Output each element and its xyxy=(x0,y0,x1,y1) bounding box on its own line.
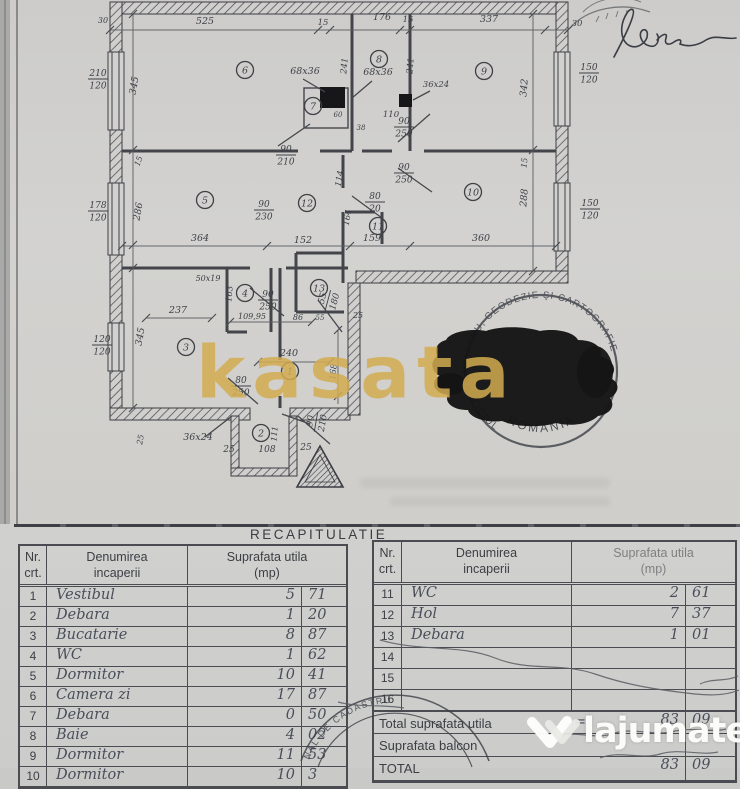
svg-text:120: 120 xyxy=(581,212,598,222)
row-number: 10 xyxy=(20,767,47,786)
scan-smudge xyxy=(360,478,610,488)
room-name: Dormitor xyxy=(47,667,188,686)
svg-text:150: 150 xyxy=(580,63,597,73)
table-header: Nr.crt. Denumireaincaperii Suprafata uti… xyxy=(374,542,735,585)
dimension-fraction: 90230 xyxy=(254,200,274,223)
dimension-fraction: 90210 xyxy=(276,145,296,168)
room-name: Hol xyxy=(402,606,572,626)
table-row: 13Debara101 xyxy=(374,627,735,648)
area-value: 1787 xyxy=(188,687,346,706)
area-value xyxy=(572,669,735,689)
room-name: WC xyxy=(402,585,572,605)
area-value: 402 xyxy=(188,727,346,746)
table-row: 1Vestibul571 xyxy=(20,587,346,607)
room-name: Dormitor xyxy=(47,767,188,786)
svg-text:180: 180 xyxy=(328,292,342,311)
dimension-label: 345 xyxy=(134,327,148,347)
dimension-label: 360 xyxy=(472,233,490,244)
svg-text:3: 3 xyxy=(183,342,189,353)
dimension-label: 15 xyxy=(133,155,145,168)
area-value: 120 xyxy=(188,607,346,626)
area-value: 050 xyxy=(188,707,346,726)
room-name: Debara xyxy=(47,607,188,626)
dimension-fraction: 150120 xyxy=(580,199,600,222)
dimension-label: 15 xyxy=(403,15,414,25)
svg-text:210: 210 xyxy=(88,69,106,79)
svg-text:80: 80 xyxy=(369,192,381,202)
header-nr: Nr.crt. xyxy=(374,542,402,582)
dimension-fraction: 150120 xyxy=(579,63,599,86)
room-name: WC xyxy=(47,647,188,666)
row-number: 12 xyxy=(374,606,402,626)
scan-smudge xyxy=(390,497,610,506)
svg-text:90: 90 xyxy=(280,145,292,155)
dimension-label: 36x24 xyxy=(423,80,449,90)
row-number: 3 xyxy=(20,627,47,646)
area-value: 887 xyxy=(188,627,346,646)
svg-text:250: 250 xyxy=(258,303,276,313)
svg-text:150: 150 xyxy=(581,199,598,209)
row-number: 7 xyxy=(20,707,47,726)
header-area: Suprafata utila(mp) xyxy=(572,542,735,582)
dimension-label: 15 xyxy=(520,157,530,168)
svg-text:90: 90 xyxy=(258,200,270,210)
dimension-label: 364 xyxy=(191,233,209,244)
area-value: 261 xyxy=(572,585,735,605)
svg-text:6: 6 xyxy=(242,65,248,76)
area-value xyxy=(572,648,735,668)
dimension-label: 38 xyxy=(357,124,366,132)
table-row: 10Dormitor103 xyxy=(20,767,346,787)
table-row: 7Debara050 xyxy=(20,707,346,727)
vent-block-large xyxy=(320,87,345,108)
area-value: 571 xyxy=(188,587,346,606)
room-number: 6 xyxy=(237,62,254,79)
header-nr: Nr.crt. xyxy=(20,546,47,584)
svg-text:210: 210 xyxy=(276,158,294,168)
svg-text:7: 7 xyxy=(310,101,317,112)
table-row: 6Camera zi1787 xyxy=(20,687,346,707)
svg-text:120: 120 xyxy=(89,214,106,224)
table-row: 16 xyxy=(374,690,735,711)
row-number: 1 xyxy=(20,587,47,606)
dimension-label: 286 xyxy=(131,202,145,223)
handwritten-signature xyxy=(614,9,736,57)
row-number: 2 xyxy=(20,607,47,626)
dimension-fraction: 178120 xyxy=(88,201,108,224)
table-row: 3Bucatarie887 xyxy=(20,627,346,647)
row-number: 16 xyxy=(374,690,402,710)
room-number: 10 xyxy=(465,184,482,201)
dimension-fraction: 210120 xyxy=(88,69,108,92)
dimension-label: 111 xyxy=(269,426,279,442)
room-number: 11 xyxy=(370,218,387,235)
dimension-fraction: 90250 xyxy=(258,290,278,313)
dimension-label: 36x24 xyxy=(183,432,213,443)
dimension-label: 152 xyxy=(294,235,312,246)
room-name: Bucatarie xyxy=(47,627,188,646)
dimension-fraction: 90250 xyxy=(394,163,414,186)
room-name: Debara xyxy=(47,707,188,726)
dimension-label: 345 xyxy=(128,76,142,96)
dimension-label: 30 xyxy=(98,16,108,25)
table-body: 11WC26112Hol73713Debara101141516 xyxy=(374,585,735,711)
area-value: 1153 xyxy=(188,747,346,766)
svg-text:120: 120 xyxy=(89,82,106,92)
room-number: 5 xyxy=(197,192,214,209)
room-name xyxy=(402,690,572,710)
lajumate-watermark: lajumate.ro xyxy=(527,710,740,752)
room-number: 4 xyxy=(237,285,254,302)
room-name xyxy=(402,669,572,689)
room-name: Vestibul xyxy=(47,587,188,606)
svg-text:12: 12 xyxy=(301,198,313,209)
table-row: 5Dormitor1041 xyxy=(20,667,346,687)
svg-text:120: 120 xyxy=(93,348,110,358)
row-number: 9 xyxy=(20,747,47,766)
room-name xyxy=(402,648,572,668)
dimension-label: 110 xyxy=(383,110,400,120)
area-value: 101 xyxy=(572,627,735,647)
svg-text:90: 90 xyxy=(398,117,410,127)
table-row: 12Hol737 xyxy=(374,606,735,627)
room-name: Camera zi xyxy=(47,687,188,706)
dimension-label: 288 xyxy=(518,188,531,208)
kasata-watermark: kasata xyxy=(196,331,516,414)
dimension-label: 109,95 xyxy=(238,312,266,321)
row-number: 5 xyxy=(20,667,47,686)
table-row: 9Dormitor1153 xyxy=(20,747,346,767)
dimension-label: 163 xyxy=(224,285,235,302)
svg-text:9: 9 xyxy=(481,66,487,77)
table-row: 11WC261 xyxy=(374,585,735,606)
recap-table-left: Nr.crt. Denumireaincaperii Suprafata uti… xyxy=(18,544,348,789)
table-row: 14 xyxy=(374,648,735,669)
table-row: 2Debara120 xyxy=(20,607,346,627)
dimension-label: 25 xyxy=(299,443,312,453)
dimension-label: 159 xyxy=(363,233,381,244)
svg-text:90: 90 xyxy=(262,290,274,300)
table-row: 4WC162 xyxy=(20,647,346,667)
dimension-label: 25 xyxy=(135,434,146,447)
vent-block-small xyxy=(399,94,412,107)
svg-text:210: 210 xyxy=(317,414,330,434)
dimension-label: 15 xyxy=(318,18,329,28)
svg-text:178: 178 xyxy=(89,201,106,211)
grand-total-row: TOTAL 83 09 xyxy=(374,757,735,781)
floor-plan-drawing: 1234567891011121330525151761533730345152… xyxy=(0,0,740,524)
svg-text:250: 250 xyxy=(394,130,412,140)
recap-title: RECAPITULATIE xyxy=(250,527,387,542)
dimension-label: 68x36 xyxy=(363,67,393,78)
area-value: 103 xyxy=(188,767,346,786)
grand-total-label: TOTAL xyxy=(374,757,572,780)
row-number: 13 xyxy=(374,627,402,647)
dimension-label: 164 xyxy=(342,209,355,227)
table-row: 8Baie402 xyxy=(20,727,346,747)
svg-text:250: 250 xyxy=(394,176,412,186)
dimension-label: 241 xyxy=(405,57,416,75)
svg-text:8: 8 xyxy=(376,54,382,65)
dimension-label: 50x19 xyxy=(196,274,221,283)
svg-text:11: 11 xyxy=(372,221,384,232)
dimension-label: 525 xyxy=(196,16,214,27)
svg-text:20: 20 xyxy=(368,205,381,215)
room-number: 7 xyxy=(305,98,322,115)
lajumate-text: lajumate xyxy=(583,711,740,751)
area-value: 162 xyxy=(188,647,346,666)
table-header: Nr.crt. Denumireaincaperii Suprafata uti… xyxy=(20,546,346,587)
row-number: 4 xyxy=(20,647,47,666)
dimension-label: 25 xyxy=(352,311,363,320)
svg-text:2: 2 xyxy=(257,428,264,439)
dimension-label: 60 xyxy=(334,111,343,119)
scanned-floor-plan-document: { "watermarks": { "center_text": "kasata… xyxy=(0,0,740,768)
svg-text:90: 90 xyxy=(398,163,410,173)
table-row: 15 xyxy=(374,669,735,690)
svg-text:5: 5 xyxy=(202,195,208,206)
row-number: 15 xyxy=(374,669,402,689)
svg-text:230: 230 xyxy=(254,213,272,223)
lajumate-w-logo-icon xyxy=(527,710,583,752)
header-area: Suprafata utila(mp) xyxy=(188,546,346,584)
svg-text:55: 55 xyxy=(317,291,330,305)
room-number: 9 xyxy=(476,63,493,80)
row-number: 14 xyxy=(374,648,402,668)
table-body: 1Vestibul5712Debara1203Bucatarie8874WC16… xyxy=(20,587,346,787)
header-name: Denumireaincaperii xyxy=(47,546,188,584)
dimension-label: 108 xyxy=(258,445,275,455)
header-name: Denumireaincaperii xyxy=(402,542,572,582)
dimension-label: 237 xyxy=(168,305,188,316)
dimension-label: 68x36 xyxy=(290,66,320,77)
row-number: 11 xyxy=(374,585,402,605)
dimension-label: 342 xyxy=(518,78,531,97)
room-name: Debara xyxy=(402,627,572,647)
room-number: 12 xyxy=(299,195,316,212)
room-number: 3 xyxy=(178,339,195,356)
room-number: 8 xyxy=(371,51,388,68)
grand-total-value: 83 09 xyxy=(572,757,735,780)
paper-fold-lines xyxy=(5,0,17,524)
svg-text:120: 120 xyxy=(93,335,110,345)
svg-text:4: 4 xyxy=(241,288,248,299)
area-value: 737 xyxy=(572,606,735,626)
dimension-label: 86 xyxy=(293,313,303,322)
svg-text:120: 120 xyxy=(580,76,597,86)
dimension-label: 25 xyxy=(222,445,235,455)
svg-text:10: 10 xyxy=(467,187,479,198)
area-value xyxy=(572,690,735,710)
row-number: 6 xyxy=(20,687,47,706)
row-number: 8 xyxy=(20,727,47,746)
room-name: Dormitor xyxy=(47,747,188,766)
dimension-label: 241 xyxy=(339,57,350,75)
dimension-label: 55 xyxy=(316,314,325,322)
room-number: 2 xyxy=(253,425,270,442)
room-name: Baie xyxy=(47,727,188,746)
area-value: 1041 xyxy=(188,667,346,686)
dimension-label: 337 xyxy=(480,14,499,25)
dimension-label: 176 xyxy=(373,12,391,23)
